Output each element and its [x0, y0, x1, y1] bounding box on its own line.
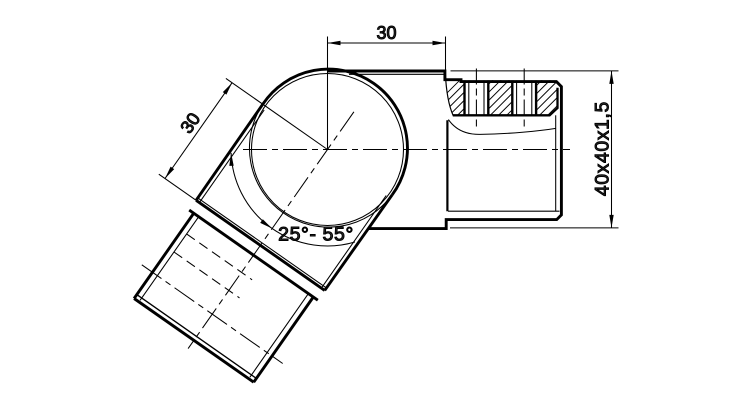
- svg-text:30: 30: [376, 23, 396, 43]
- svg-text:40x40x1,5: 40x40x1,5: [593, 101, 614, 196]
- svg-text:25°- 55°: 25°- 55°: [278, 224, 354, 246]
- svg-text:30: 30: [176, 109, 204, 137]
